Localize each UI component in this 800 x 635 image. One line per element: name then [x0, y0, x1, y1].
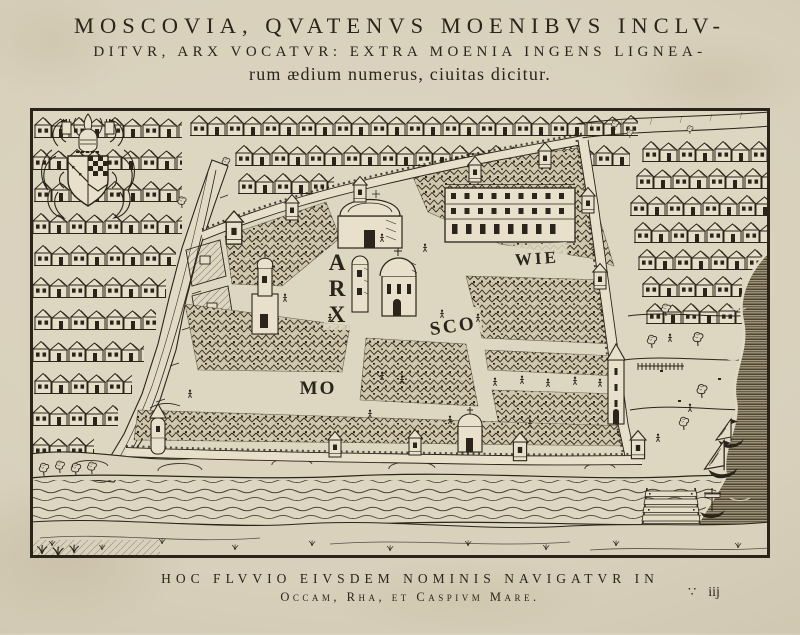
label-arx-a: A — [329, 250, 346, 275]
caption-line-1: HOC FLVVIO EIVSDEM NOMINIS NAVIGATVR IN — [161, 571, 659, 587]
foreground-bank — [30, 520, 770, 558]
bell-tower — [352, 256, 368, 312]
tall-gate-tower — [607, 344, 625, 424]
label-wie: WIE — [514, 247, 559, 269]
title-line-2: DITVR, ARX VOCATVR: EXTRA MOENIA INGENS … — [5, 44, 795, 61]
title-line-1: MOSCOVIA, QVATENVS MOENIBVS INCLV- — [5, 13, 795, 39]
caption-line-2: Occam, Rha, et Caspivm Mare. — [161, 590, 659, 605]
title-line-3: rum ædium numerus, ciuitas dicitur. — [5, 64, 795, 85]
palace — [445, 185, 575, 243]
map-title: MOSCOVIA, QVATENVS MOENIBVS INCLV- DITVR… — [5, 13, 795, 85]
map-caption: HOC FLVVIO EIVSDEM NOMINIS NAVIGATVR IN … — [161, 571, 659, 605]
helmet — [79, 129, 97, 152]
printers-mark-dots: ∵ — [688, 584, 696, 599]
label-mo: MO — [300, 378, 337, 399]
label-arx-r: R — [329, 276, 346, 301]
map-engraving: A R X MO SCO WIE — [30, 108, 770, 558]
quire-signature: iij — [708, 585, 720, 600]
printers-mark: ∵iij — [688, 584, 720, 601]
map-frame: A R X MO SCO WIE — [30, 108, 770, 558]
label-arx-x: X — [329, 302, 346, 327]
antique-map-page: { "title": { "line1": "MOSCOVIA, QVATENV… — [0, 0, 800, 633]
